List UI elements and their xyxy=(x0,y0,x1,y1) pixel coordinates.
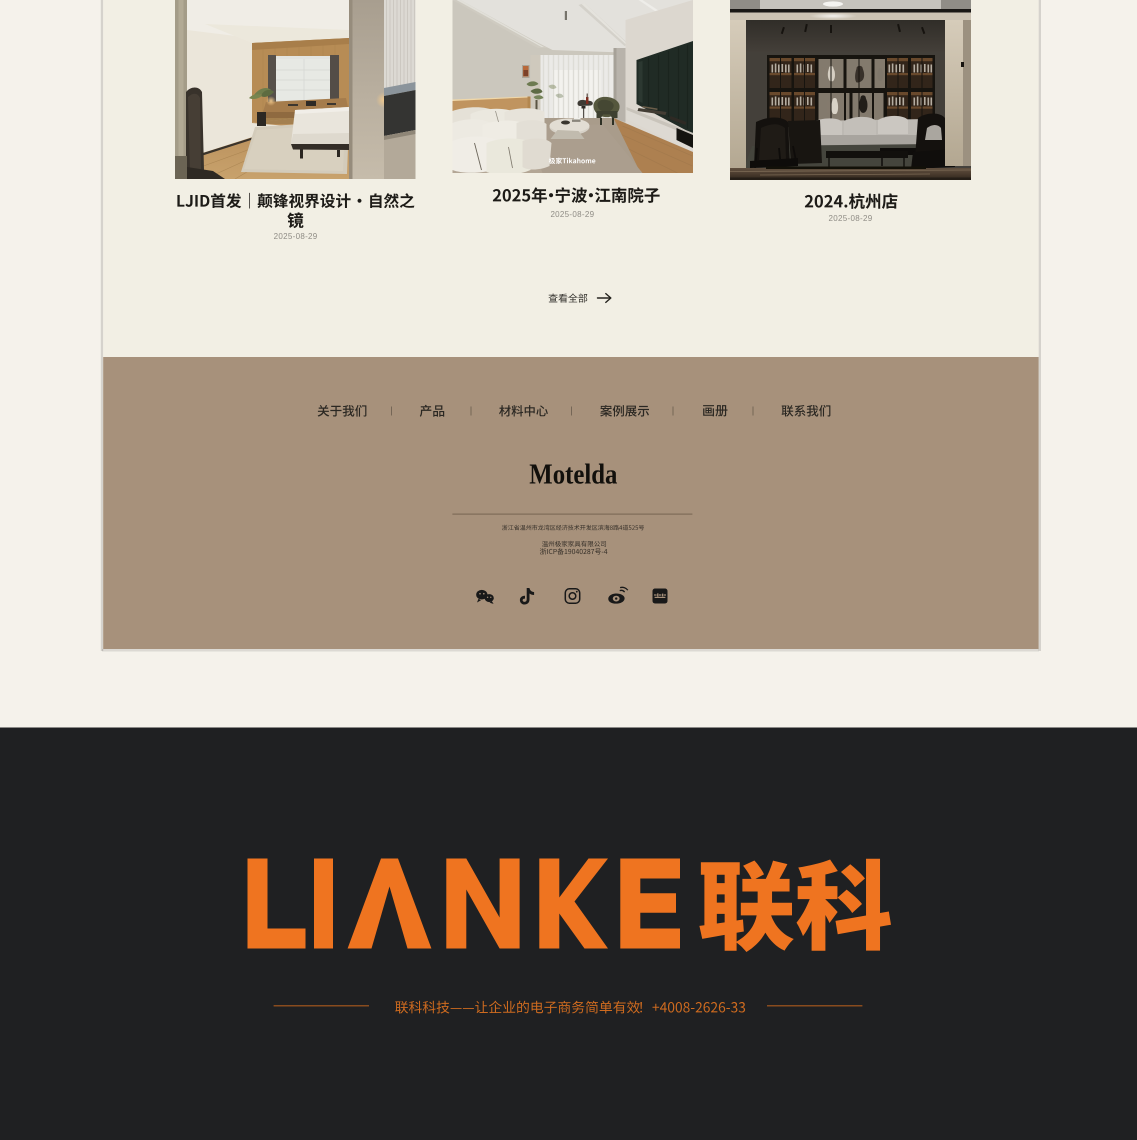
svg-text:Motelda: Motelda xyxy=(529,458,618,490)
svg-text:2025-08-29: 2025-08-29 xyxy=(829,214,873,223)
svg-text:2025-08-29: 2025-08-29 xyxy=(550,210,594,219)
svg-text:2025-08-29: 2025-08-29 xyxy=(274,232,318,241)
